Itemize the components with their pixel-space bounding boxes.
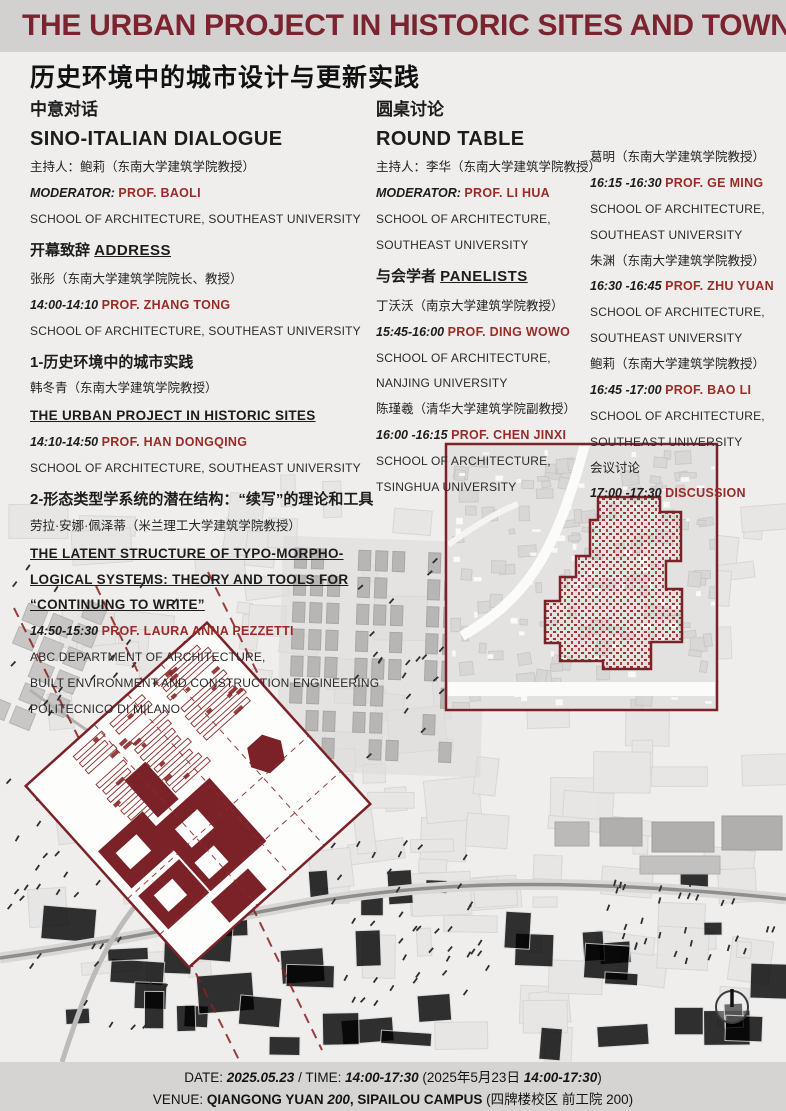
text-line: 16:00 -16:15 PROF. CHEN JINXI [376, 426, 601, 445]
text-line: BUILT ENVIRONMENT AND CONSTRUCTION ENGIN… [30, 674, 379, 693]
column-round-table-continued: 葛明（东南大学建筑学院教授）16:15 -16:30 PROF. GE MING… [590, 148, 774, 510]
header-band: THE URBAN PROJECT IN HISTORIC SITES AND … [0, 0, 786, 52]
column-round-table: 圆桌讨论ROUND TABLE主持人：李华（东南大学建筑学院教授）MODERAT… [376, 100, 601, 504]
text-line: SCHOOL OF ARCHITECTURE, [376, 210, 601, 229]
text-line: 14:00-14:10 PROF. ZHANG TONG [30, 296, 379, 315]
text-line: SOUTHEAST UNIVERSITY [376, 236, 601, 255]
text-line: 开幕致辞 ADDRESS [30, 242, 379, 261]
text-line: THE LATENT STRUCTURE OF TYPO-MORPHO- [30, 545, 379, 564]
text-line: 葛明（东南大学建筑学院教授） [590, 148, 774, 167]
text-line: 张彤（东南大学建筑学院院长、教授） [30, 270, 379, 289]
text-line: SCHOOL OF ARCHITECTURE, SOUTHEAST UNIVER… [30, 459, 379, 478]
text-line: SCHOOL OF ARCHITECTURE, SOUTHEAST UNIVER… [30, 322, 379, 341]
text-line: 与会学者 PANELISTS [376, 268, 601, 287]
text-line: 主持人：李华（东南大学建筑学院教授） [376, 158, 601, 177]
text-line: 16:15 -16:30 PROF. GE MING [590, 174, 774, 193]
column-sino-italian-dialogue: 中意对话SINO-ITALIAN DIALOGUE主持人：鲍莉（东南大学建筑学院… [30, 100, 379, 726]
text-line: 鲍莉（东南大学建筑学院教授） [590, 355, 774, 374]
text-line: MODERATOR: PROF. BAOLI [30, 184, 379, 203]
text-line: ABC DEPARTMENT OF ARCHITECTURE, [30, 648, 379, 667]
text-line: SOUTHEAST UNIVERSITY [590, 226, 774, 245]
text-line: 14:10-14:50 PROF. HAN DONGQING [30, 433, 379, 452]
text-line: POLITECNICO DI MILANO [30, 700, 379, 719]
text-line: 14:50-15:30 PROF. LAURA ANNA PEZZETTI [30, 622, 379, 641]
text-line: TSINGHUA UNIVERSITY [376, 478, 601, 497]
footer-venue: VENUE: QIANGONG YUAN 200, SIPAILOU CAMPU… [153, 1088, 633, 1108]
text-line: 圆桌讨论 [376, 100, 601, 121]
text-line: SCHOOL OF ARCHITECTURE, [376, 452, 601, 471]
text-line: 朱渊（东南大学建筑学院教授） [590, 252, 774, 271]
text-line: THE URBAN PROJECT IN HISTORIC SITES [30, 407, 379, 426]
text-line: 2-形态类型学系统的潜在结构：“续写”的理论和工具 [30, 491, 379, 510]
text-line: SCHOOL OF ARCHITECTURE, [590, 200, 774, 219]
text-line: 主持人：鲍莉（东南大学建筑学院教授） [30, 158, 379, 177]
text-line: SOUTHEAST UNIVERSITY [590, 329, 774, 348]
text-line: SINO-ITALIAN DIALOGUE [30, 128, 379, 152]
text-line: 丁沃沃（南京大学建筑学院教授） [376, 297, 601, 316]
footer-date-time: DATE: 2025.05.23 / TIME: 14:00-17:30 (20… [184, 1066, 602, 1086]
text-line: 陈瑾羲（清华大学建筑学院副教授） [376, 400, 601, 419]
text-line: 15:45-16:00 PROF. DING WOWO [376, 323, 601, 342]
text-line: SCHOOL OF ARCHITECTURE, SOUTHEAST UNIVER… [30, 210, 379, 229]
text-line: SCHOOL OF ARCHITECTURE, [590, 407, 774, 426]
text-line: 劳拉·安娜·佩泽蒂（米兰理工大学建筑学院教授） [30, 517, 379, 536]
text-line: “CONTINUING TO WRITE” [30, 596, 379, 615]
text-line: 中意对话 [30, 100, 379, 121]
text-line: NANJING UNIVERSITY [376, 374, 601, 393]
text-line: 16:30 -16:45 PROF. ZHU YUAN [590, 277, 774, 296]
text-line: 17:00 -17:30 DISCUSSION [590, 484, 774, 503]
text-line: SCHOOL OF ARCHITECTURE, [590, 303, 774, 322]
text-line: 1-历史环境中的城市实践 [30, 354, 379, 373]
subtitle-chinese: 历史环境中的城市设计与更新实践 [30, 58, 420, 94]
text-line: LOGICAL SYSTEMS: THEORY AND TOOLS FOR [30, 571, 379, 590]
page-title: THE URBAN PROJECT IN HISTORIC SITES AND … [0, 9, 786, 43]
poster: THE URBAN PROJECT IN HISTORIC SITES AND … [0, 0, 786, 1111]
text-line: 16:45 -17:00 PROF. BAO LI [590, 381, 774, 400]
text-line: ROUND TABLE [376, 128, 601, 152]
text-line: 会议讨论 [590, 459, 774, 478]
text-line: 韩冬青（东南大学建筑学院教授） [30, 379, 379, 398]
text-line: SCHOOL OF ARCHITECTURE, [376, 349, 601, 368]
footer-band: DATE: 2025.05.23 / TIME: 14:00-17:30 (20… [0, 1062, 786, 1111]
text-line: MODERATOR: PROF. LI HUA [376, 184, 601, 203]
text-line: SOUTHEAST UNIVERSITY [590, 433, 774, 452]
